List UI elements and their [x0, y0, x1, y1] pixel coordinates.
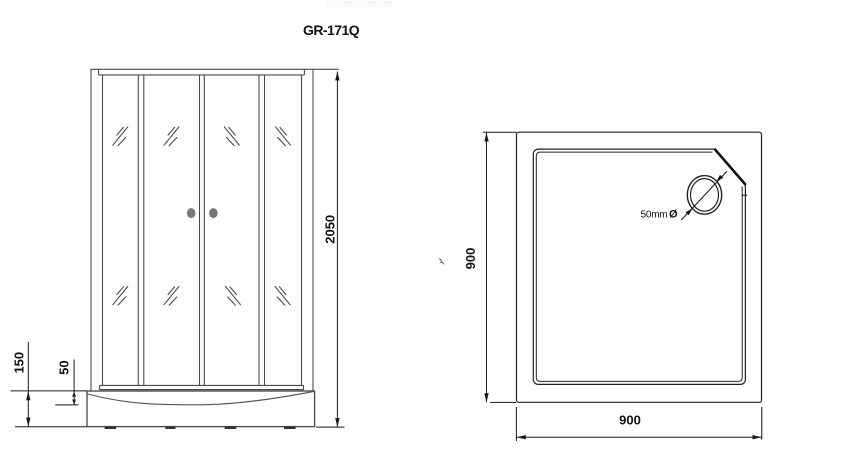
svg-text:2050: 2050	[323, 215, 338, 244]
svg-text:GR-171Q: GR-171Q	[303, 22, 360, 38]
svg-text:50: 50	[57, 360, 72, 374]
svg-text:50mm: 50mm	[641, 209, 668, 220]
svg-text:Ø: Ø	[669, 209, 678, 221]
svg-text:900: 900	[463, 248, 478, 270]
svg-text:900: 900	[619, 412, 641, 427]
svg-text:150: 150	[12, 352, 27, 374]
